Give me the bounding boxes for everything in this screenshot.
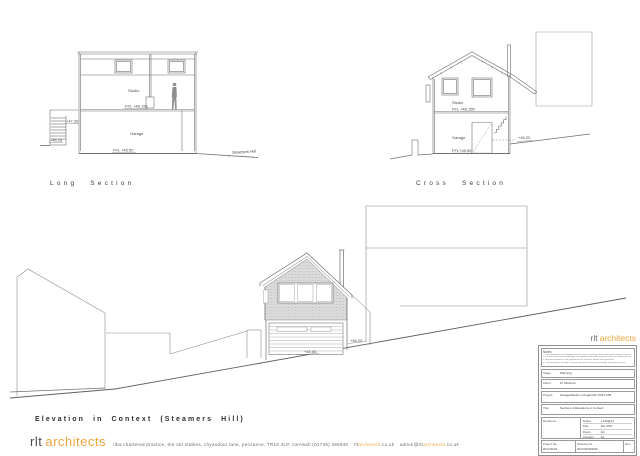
revisions-meta-panel: Revisions - - - Scales1:100@A1 DateDec 2… <box>541 417 635 439</box>
client-value: M. McGuire <box>560 381 576 385</box>
drawing-no-cell: Drawing No. 2017/2043/D06 <box>576 441 624 452</box>
level-entry-label: +47.30 <box>66 118 79 123</box>
ffl-garage-label: FFL +45.50 <box>113 148 134 153</box>
footer-logo-rlt: rlt <box>30 434 42 449</box>
revision-entry: - <box>543 431 579 435</box>
scales-label: Scales <box>583 419 601 423</box>
title-label: Title: <box>543 406 560 410</box>
title-block-logo-rlt: rlt <box>591 333 598 343</box>
title-block: rltarchitects Notes: 1. This drawing is … <box>538 333 637 456</box>
scales-value: 1:100@A1 <box>601 419 614 423</box>
project-label: Project: <box>543 393 560 397</box>
long-section-drawing: Studio FFL +48.155 Garage FFL +45.50 +47… <box>30 38 280 168</box>
notes-panel: Notes: 1. This drawing is the copyright … <box>541 348 635 368</box>
ffl-garage-label: FFL+45.50 <box>452 148 472 153</box>
footer-contact: riba chartered practice, the old stables… <box>113 442 459 447</box>
title-block-logo-architects: architects <box>600 333 636 343</box>
level-garage-label: +45.50 <box>304 349 317 354</box>
long-section-lines <box>40 52 258 158</box>
drawing-no-label: Drawing No. <box>577 442 621 446</box>
title-block-box: Notes: 1. This drawing is the copyright … <box>538 345 637 456</box>
elevation-title: Elevation in Context (Steamers Hill) <box>35 416 245 423</box>
title-value: Sections & Elevations in Context <box>560 406 603 410</box>
garage-label: Garage <box>452 135 466 140</box>
long-section-title: Long Section <box>50 180 134 187</box>
rev-label: Rev. <box>625 442 632 446</box>
proposed-house <box>260 250 370 360</box>
studio-label: Studio <box>128 88 140 93</box>
drawn-value: AG <box>601 430 605 434</box>
project-no-value: 2017/2043 <box>543 447 573 451</box>
cross-section-title: Cross Section <box>416 180 506 187</box>
level-path-label: +46.28 <box>50 137 63 142</box>
numbers-panel: Project No. 2017/2043 Drawing No. 2017/2… <box>541 440 635 453</box>
stage-label: Stage: <box>543 371 560 375</box>
cross-section-drawing: Studio FFL +48.155 Garage FFL+45.50 +46.… <box>390 28 600 173</box>
drawing-title-row: Title: Sections & Elevations in Context <box>541 404 635 415</box>
steamers-hill-label: Steamers Hill <box>232 149 256 155</box>
checked-value: DL <box>601 435 605 439</box>
project-value: Garage/Studio in Angarrack TR27 5JB <box>560 393 611 397</box>
date-value: Dec 2017 <box>601 424 613 428</box>
cross-section-labels: Studio FFL +48.155 Garage FFL+45.50 +46.… <box>452 100 531 153</box>
drawn-label: Drawn <box>583 430 601 434</box>
revisions-cell: Revisions - - - <box>542 418 582 438</box>
project-no-label: Project No. <box>543 442 573 446</box>
drawing-no-value: 2017/2043/D06 <box>577 447 621 451</box>
client-label: Client: <box>543 381 560 385</box>
title-block-logo: rltarchitects <box>538 333 637 344</box>
studio-label: Studio <box>452 100 464 105</box>
project-no-cell: Project No. 2017/2043 <box>542 441 576 452</box>
stage-row: Stage: Planning <box>541 369 635 378</box>
long-section-labels: Studio FFL +48.155 Garage FFL +45.50 +47… <box>50 88 256 155</box>
ffl-studio-label: FFL +48.155 <box>452 107 475 112</box>
checked-label: Checked <box>583 435 601 439</box>
project-row: Project: Garage/Studio in Angarrack TR27… <box>541 391 635 403</box>
ffl-studio-label: FFL +48.155 <box>125 103 148 108</box>
client-row: Client: M. McGuire <box>541 379 635 389</box>
person-figure <box>172 83 177 110</box>
level-ground-label: +46.20 <box>350 338 363 343</box>
footer: rlt architects riba chartered practice, … <box>30 434 459 449</box>
stage-value: Planning <box>560 371 572 375</box>
garage-label: Garage <box>130 131 144 136</box>
cross-section-lines <box>390 32 592 159</box>
note-line: 4. This drawing to be read in conjunctio… <box>543 362 632 365</box>
level-rear-label: +46.20 <box>518 135 531 140</box>
footer-logo-architects: architects <box>45 434 106 449</box>
facts-cell: Scales1:100@A1 DateDec 2017 DrawnAG Chec… <box>581 418 633 438</box>
rev-cell: Rev. <box>624 441 634 452</box>
date-label: Date <box>583 424 601 428</box>
